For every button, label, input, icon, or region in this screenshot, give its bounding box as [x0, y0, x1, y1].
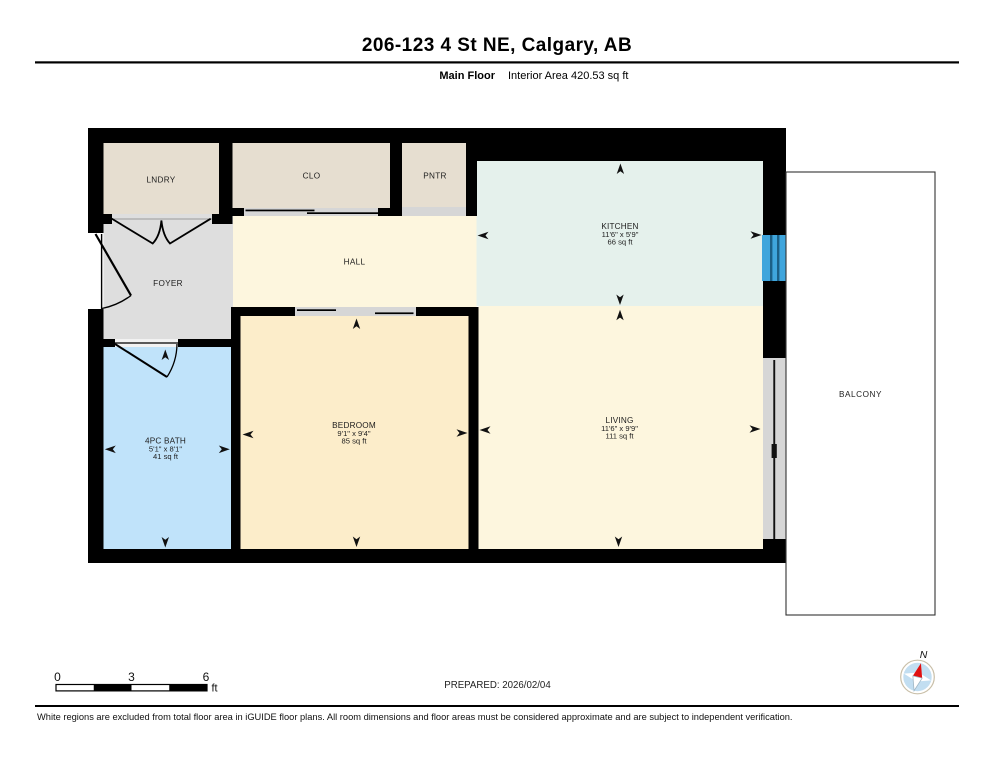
svg-text:Main Floor: Main Floor: [439, 70, 495, 82]
svg-text:FOYER: FOYER: [153, 279, 183, 288]
svg-text:PREPARED: 2026/02/04: PREPARED: 2026/02/04: [444, 680, 551, 691]
svg-text:BALCONY: BALCONY: [839, 390, 882, 399]
svg-text:206-123 4 St NE, Calgary, AB: 206-123 4 St NE, Calgary, AB: [362, 35, 632, 56]
svg-text:0: 0: [54, 670, 61, 684]
svg-text:CLO: CLO: [303, 172, 321, 181]
svg-text:41 sq ft: 41 sq ft: [153, 452, 179, 461]
svg-text:LNDRY: LNDRY: [146, 176, 175, 185]
svg-text:HALL: HALL: [344, 258, 366, 267]
svg-text:N: N: [920, 649, 928, 661]
svg-text:66 sq ft: 66 sq ft: [608, 238, 634, 247]
svg-text:111 sq ft: 111 sq ft: [605, 432, 634, 441]
svg-text:Interior Area 420.53 sq ft: Interior Area 420.53 sq ft: [508, 70, 628, 82]
svg-text:PNTR: PNTR: [423, 172, 447, 181]
svg-text:ft: ft: [212, 683, 218, 695]
svg-text:85 sq ft: 85 sq ft: [342, 437, 368, 446]
svg-text:6: 6: [203, 670, 210, 684]
svg-text:White regions are excluded fro: White regions are excluded from total fl…: [37, 712, 793, 722]
svg-text:3: 3: [128, 670, 135, 684]
